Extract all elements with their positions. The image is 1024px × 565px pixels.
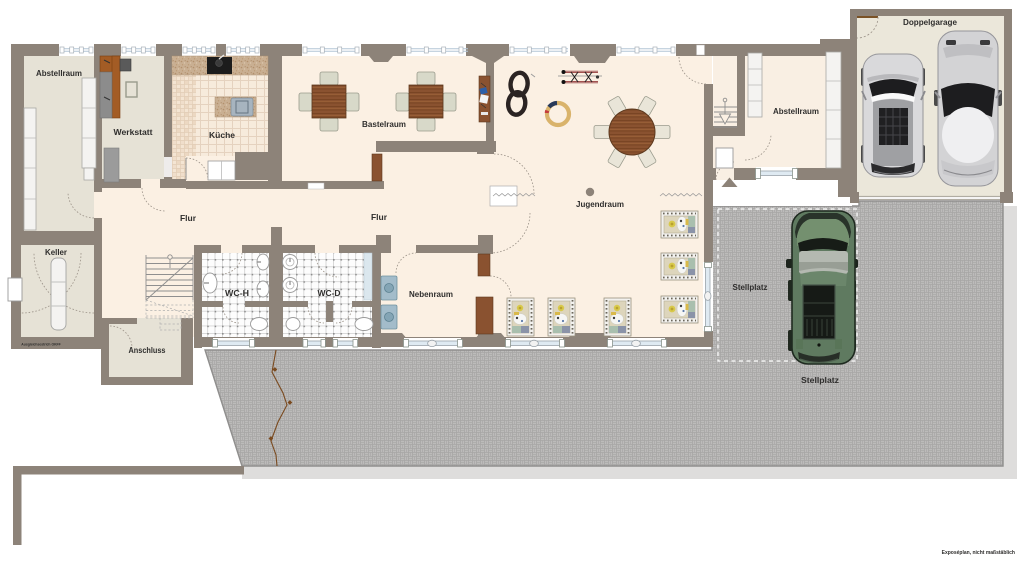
svg-text:Anschluss: Anschluss (129, 346, 166, 355)
svg-text:Werkstatt: Werkstatt (114, 128, 153, 137)
svg-text:Stellplatz: Stellplatz (801, 376, 839, 385)
svg-text:Stellplatz: Stellplatz (733, 283, 768, 292)
svg-text:Flur: Flur (371, 213, 388, 222)
svg-text:Exposéplan, nicht maßstäblich: Exposéplan, nicht maßstäblich (942, 550, 1015, 556)
svg-text:Doppelgarage: Doppelgarage (903, 18, 957, 27)
svg-text:Ausgleichsestrich OKFF: Ausgleichsestrich OKFF (21, 343, 60, 347)
svg-text:Küche: Küche (209, 131, 235, 140)
svg-text:WC-D: WC-D (318, 289, 341, 298)
svg-text:Keller: Keller (45, 248, 68, 257)
svg-text:Nebenraum: Nebenraum (409, 290, 453, 299)
svg-text:Abstellraum: Abstellraum (773, 107, 819, 116)
svg-text:Flur: Flur (180, 214, 197, 223)
svg-text:WC-H: WC-H (225, 289, 249, 298)
svg-text:Jugendraum: Jugendraum (576, 200, 624, 209)
svg-text:Abstellraum: Abstellraum (36, 69, 82, 78)
svg-text:Bastelraum: Bastelraum (362, 120, 406, 129)
